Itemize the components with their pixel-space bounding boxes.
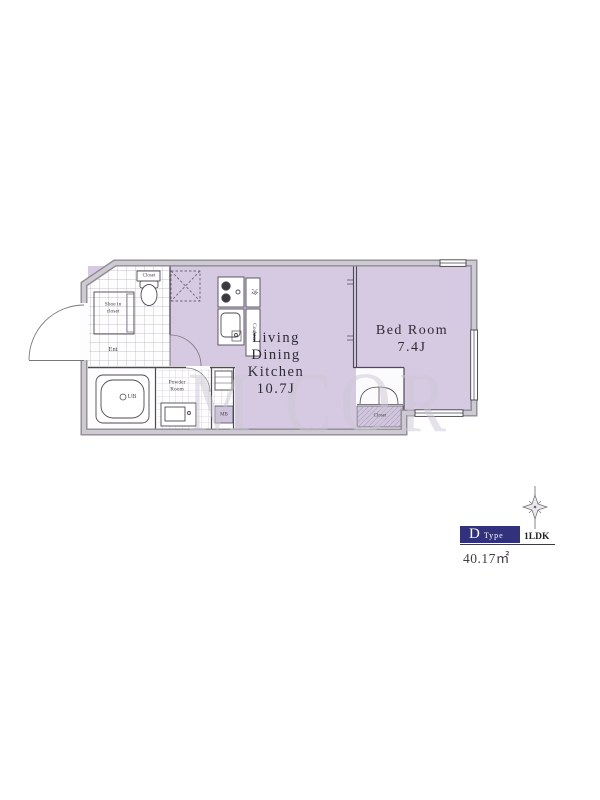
type-badge: D Type <box>460 526 520 543</box>
ldk-size-label: 10.7J <box>257 382 296 397</box>
powder-room-label-line1: Powder <box>169 380 186 386</box>
toilet-shelf-label: Closet <box>143 274 156 279</box>
bedroom-size-label: 7.4J <box>398 341 427 355</box>
unit-bath-label: UB <box>127 394 136 401</box>
entrance-door <box>29 303 89 361</box>
type-letter: D <box>469 526 480 543</box>
floor-plan-page: M COR Living Dining Kitchen 10.7J Bed Ro… <box>0 0 600 800</box>
ldk-label-line2: Dining <box>251 348 300 363</box>
bedroom-closet-label: Closet <box>374 414 387 419</box>
meter-box-label: MB <box>220 413 228 418</box>
entrance-label: Ent <box>108 347 117 354</box>
window-top <box>440 260 466 267</box>
ldk-label-line1: Living <box>252 331 300 346</box>
type-word: Type <box>484 531 504 540</box>
shoe-closet-label-line1: Shoe in <box>105 302 122 308</box>
watermark-text: M COR <box>188 352 454 452</box>
window-right <box>471 330 478 400</box>
layout-label: 1LDK <box>524 532 549 542</box>
bedroom-label: Bed Room <box>376 324 448 338</box>
legend-divider <box>460 544 555 545</box>
ldk-label-line3: Kitchen <box>248 365 304 380</box>
powder-room-label-line2: Room <box>170 387 183 393</box>
area-label: 40.17㎡ <box>463 547 510 567</box>
refrigerator-label: 冷 <box>250 289 257 296</box>
counter-label: Counter <box>250 323 256 341</box>
bathtub-icon <box>96 375 149 423</box>
compass-north-icon <box>523 486 547 529</box>
shoe-closet-label-line2: closet <box>107 309 120 315</box>
kitchen-sink-icon <box>218 309 244 345</box>
stove-icon <box>218 277 244 307</box>
